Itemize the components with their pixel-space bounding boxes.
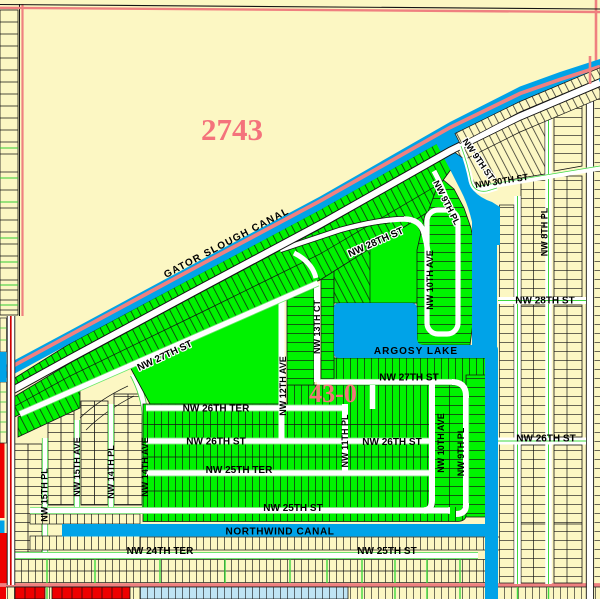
svg-text:NW 14TH PL: NW 14TH PL xyxy=(106,445,116,499)
svg-text:NW 26TH ST: NW 26TH ST xyxy=(186,437,245,448)
svg-text:NW 26TH ST: NW 26TH ST xyxy=(516,434,575,445)
svg-text:NW 15TH AVE: NW 15TH AVE xyxy=(72,437,82,497)
svg-text:NW 11TH PL: NW 11TH PL xyxy=(340,414,350,468)
svg-text:NW 8TH PL: NW 8TH PL xyxy=(540,207,550,256)
svg-text:NW 14TH AVE: NW 14TH AVE xyxy=(140,437,150,497)
svg-text:NW 26TH ST: NW 26TH ST xyxy=(362,437,421,448)
svg-text:NW 25TH ST: NW 25TH ST xyxy=(263,503,322,514)
svg-text:NW 10TH AVE: NW 10TH AVE xyxy=(436,413,446,473)
svg-text:NW 28TH ST: NW 28TH ST xyxy=(515,296,574,307)
svg-text:NW 13TH CT: NW 13TH CT xyxy=(312,299,322,354)
svg-text:NORTHWIND CANAL: NORTHWIND CANAL xyxy=(226,527,335,538)
svg-text:NW 12TH AVE: NW 12TH AVE xyxy=(278,356,288,416)
svg-text:NW 25TH ST: NW 25TH ST xyxy=(357,546,416,557)
svg-text:NW 15TH PL: NW 15TH PL xyxy=(40,468,50,522)
svg-text:NW 24TH TER: NW 24TH TER xyxy=(127,546,194,557)
svg-text:NW 26TH TER: NW 26TH TER xyxy=(183,404,250,415)
svg-text:2743: 2743 xyxy=(201,112,263,147)
svg-text:NW 27TH ST: NW 27TH ST xyxy=(379,373,438,384)
svg-text:NW 9TH PL: NW 9TH PL xyxy=(456,427,466,476)
svg-text:43-0: 43-0 xyxy=(309,379,357,408)
svg-text:NW 10TH AVE: NW 10TH AVE xyxy=(425,250,435,310)
svg-text:ARGOSY LAKE: ARGOSY LAKE xyxy=(374,346,458,357)
svg-text:NW 25TH TER: NW 25TH TER xyxy=(206,465,273,476)
